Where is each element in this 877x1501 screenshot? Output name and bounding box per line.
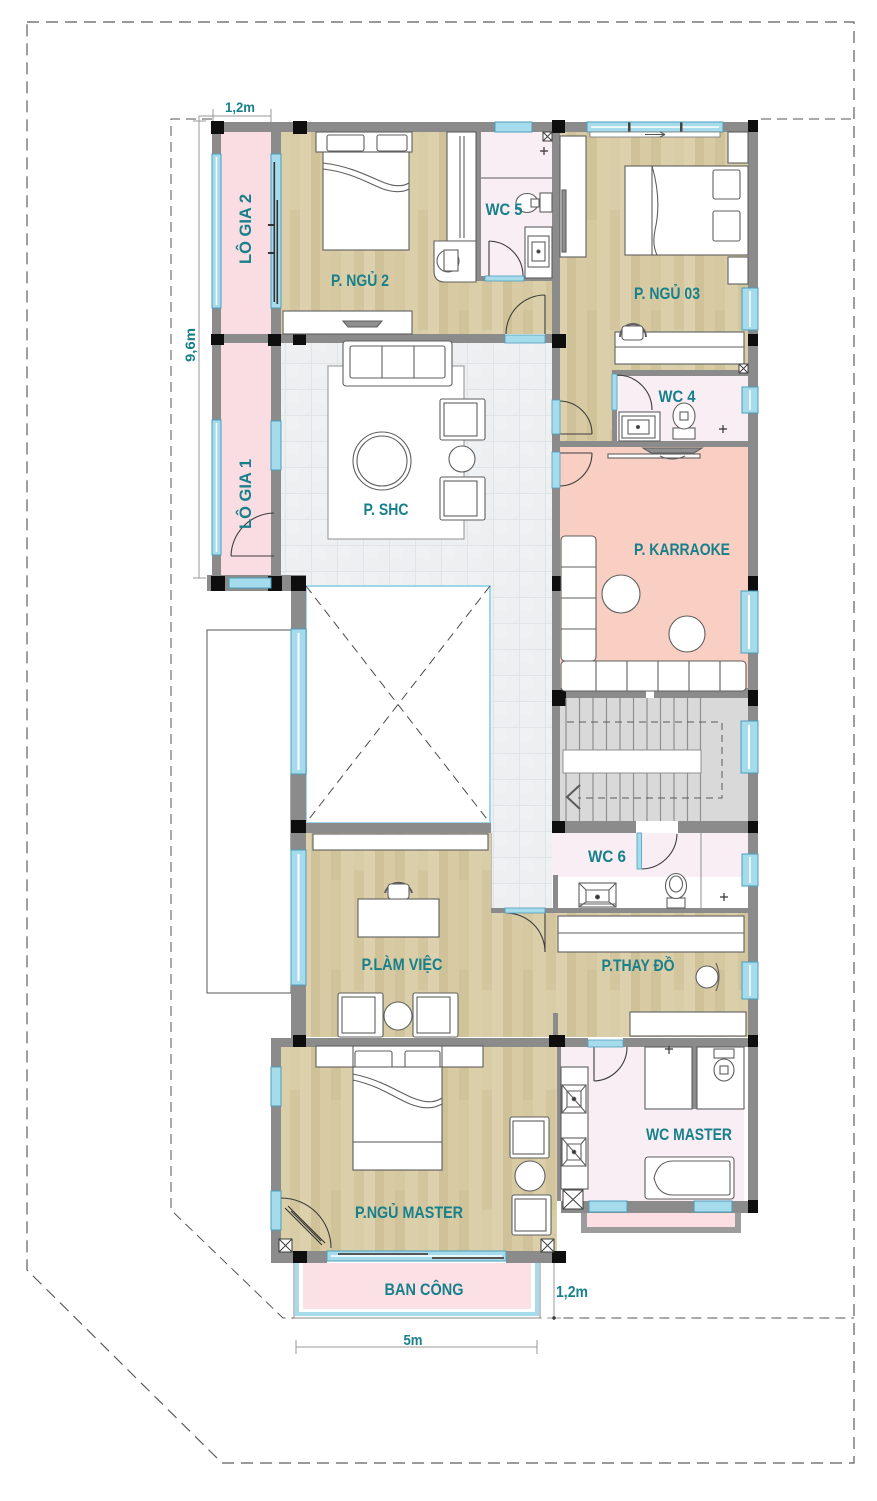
- svg-text:1,2m: 1,2m: [225, 99, 255, 115]
- svg-text:WC 4: WC 4: [659, 388, 697, 406]
- svg-text:BAN CÔNG: BAN CÔNG: [385, 1280, 464, 1299]
- svg-text:1,2m: 1,2m: [556, 1284, 588, 1301]
- svg-text:P. KARRAOKE: P. KARRAOKE: [634, 541, 730, 559]
- svg-text:LÔ GIA 2: LÔ GIA 2: [236, 194, 255, 264]
- svg-text:P. NGỦ 03: P. NGỦ 03: [634, 284, 700, 303]
- svg-text:P.THAY ĐỒ: P.THAY ĐỒ: [602, 956, 675, 975]
- svg-text:P.LÀM VIỆC: P.LÀM VIỆC: [362, 955, 443, 974]
- svg-text:WC 5: WC 5: [486, 201, 523, 219]
- svg-text:WC 6: WC 6: [588, 848, 626, 866]
- svg-text:9,6m: 9,6m: [182, 328, 198, 362]
- svg-text:P. SHC: P. SHC: [364, 501, 409, 519]
- svg-text:P.NGỦ MASTER: P.NGỦ MASTER: [355, 1203, 463, 1222]
- svg-text:P. NGỦ 2: P. NGỦ 2: [331, 271, 389, 290]
- svg-text:5m: 5m: [404, 1332, 423, 1349]
- svg-text:LÔ GIA 1: LÔ GIA 1: [236, 459, 255, 529]
- svg-text:WC MASTER: WC MASTER: [646, 1126, 732, 1144]
